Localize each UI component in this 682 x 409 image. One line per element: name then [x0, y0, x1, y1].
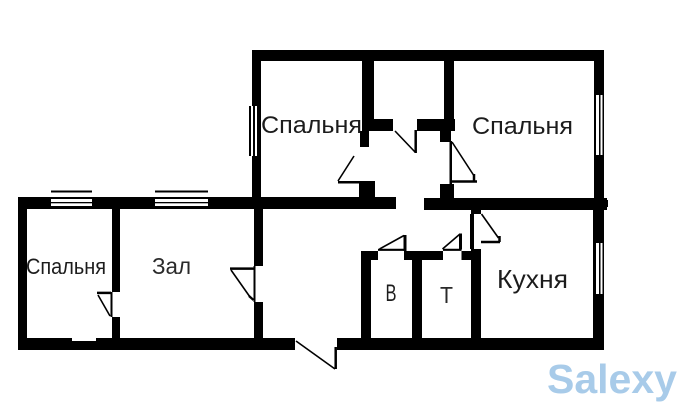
svg-text:Т: Т: [440, 282, 453, 308]
svg-text:В: В: [386, 280, 397, 307]
svg-text:Спальня: Спальня: [261, 112, 362, 139]
svg-text:Salexy: Salexy: [547, 356, 677, 402]
svg-text:Спальня: Спальня: [472, 113, 573, 140]
svg-text:Кухня: Кухня: [497, 264, 568, 294]
svg-text:Зал: Зал: [152, 253, 191, 279]
svg-text:Спальня: Спальня: [26, 254, 106, 279]
